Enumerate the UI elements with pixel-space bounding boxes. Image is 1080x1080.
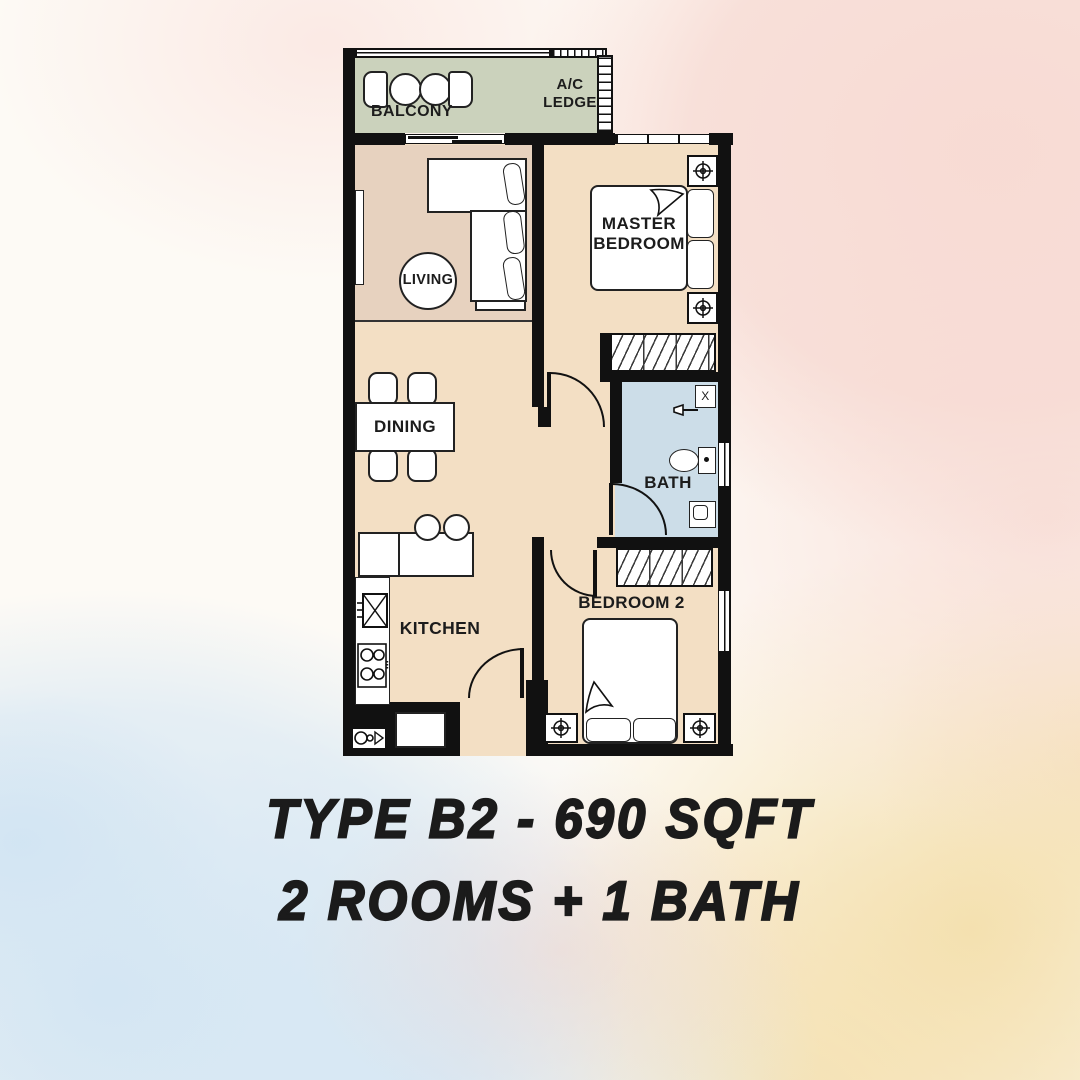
- poster-canvas: LIVING DINING: [0, 0, 1080, 1080]
- aircon-fan-icon: [687, 155, 718, 187]
- entry-door-leaf: [520, 648, 524, 698]
- washer-icon: [351, 727, 387, 750]
- kitchen-cabinet: [395, 712, 446, 748]
- dining-chair: [407, 372, 437, 406]
- plan-title: TYPE B2 - 690 SQFT: [0, 787, 1080, 851]
- bedroom2-label: BEDROOM 2: [564, 593, 699, 613]
- toilet-tank: [698, 447, 716, 474]
- sofa-foot: [475, 300, 526, 311]
- bedroom2-window: [718, 590, 730, 652]
- balcony-railing: [355, 48, 551, 58]
- shower-icon: [671, 401, 699, 419]
- master-line1: MASTER: [572, 214, 706, 234]
- sliding-door: [405, 134, 505, 144]
- dining-chair: [407, 448, 437, 482]
- bath-vent: [718, 442, 730, 487]
- dining-table: DINING: [355, 402, 455, 452]
- wall-wardrobe-bottom: [600, 372, 718, 382]
- wall-bath-left: [610, 382, 622, 483]
- wall-bedroom2-bottom: [544, 744, 733, 756]
- bedroom2-wardrobe: [616, 548, 713, 587]
- kitchen-fridge: [358, 532, 400, 577]
- master-window: [615, 134, 711, 144]
- aircon-fan-icon: [687, 292, 718, 324]
- living-label: LIVING: [403, 272, 454, 289]
- master-door-leaf: [547, 372, 551, 427]
- living-rug: LIVING: [399, 252, 457, 310]
- wall-living-master: [532, 133, 544, 407]
- balcony-label: BALCONY: [357, 102, 467, 121]
- ac-ledge-line1: A/C: [537, 76, 603, 94]
- aircon-fan-icon: [544, 713, 578, 743]
- toilet-bowl: [669, 449, 699, 472]
- sliding-door-panel: [408, 136, 458, 139]
- ac-ledge-label: A/C LEDGE: [537, 76, 603, 112]
- wall-top-a: [343, 133, 405, 145]
- bath-sink: [689, 501, 716, 528]
- toilet-tank-dot: [704, 457, 709, 462]
- tv-console: [355, 190, 364, 285]
- ac-ledge-line2: LEDGE: [537, 94, 603, 112]
- sliding-door-panel: [452, 140, 502, 143]
- wall-bedroom2-top: [597, 537, 718, 548]
- water-heater-label: X: [701, 389, 709, 403]
- bedroom2-pillow: [633, 718, 676, 742]
- dining-label: DINING: [374, 417, 436, 437]
- master-bedroom-label: MASTER BEDROOM: [572, 214, 706, 255]
- master-line2: BEDROOM: [572, 234, 706, 254]
- dining-chair: [368, 372, 398, 406]
- bedroom2-pillow: [586, 718, 631, 742]
- entry-recess-floor: [458, 695, 526, 756]
- blanket-fold-icon: [582, 678, 616, 716]
- aircon-fan-icon: [683, 713, 716, 743]
- master-wardrobe: [610, 333, 716, 372]
- wall-top-b: [505, 133, 615, 145]
- wall-left: [343, 48, 355, 756]
- bath-door-leaf: [609, 483, 613, 535]
- plan-subtitle: 2 ROOMS + 1 BATH: [0, 869, 1080, 933]
- kitchen-label: KITCHEN: [385, 618, 495, 639]
- dining-chair: [368, 448, 398, 482]
- bedroom2-door-leaf: [593, 550, 597, 597]
- bath-sink-basin: [693, 505, 708, 520]
- kitchen-stove-icon: [357, 643, 390, 688]
- bath-label: BATH: [630, 473, 706, 493]
- kitchen-stool: [414, 514, 441, 541]
- kitchen-stool: [443, 514, 470, 541]
- floor-plan: LIVING DINING: [343, 40, 735, 756]
